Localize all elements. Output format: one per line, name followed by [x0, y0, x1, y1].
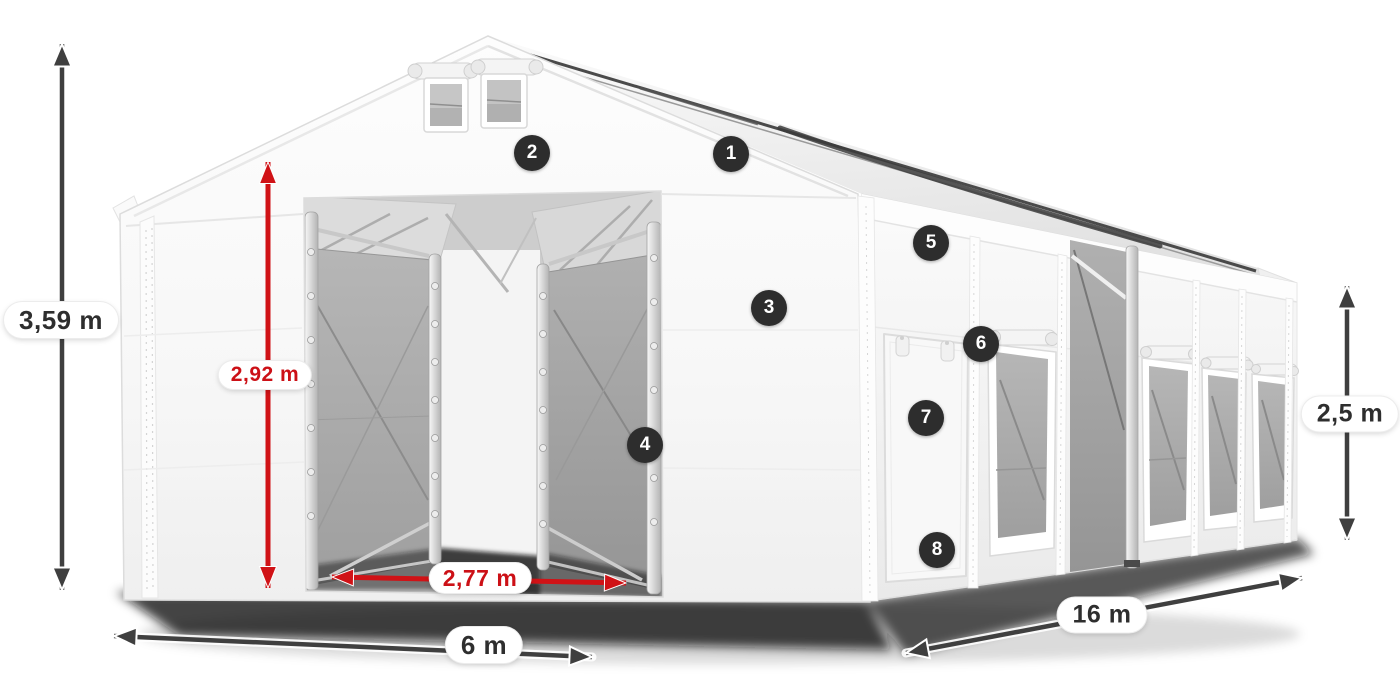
- feature-badge-5[interactable]: 5: [913, 225, 949, 261]
- open-side-bay: [1070, 240, 1140, 572]
- side-window-2: [1141, 346, 1200, 542]
- side-window-1: [988, 330, 1059, 556]
- tent-dimension-diagram: 3,59 m 2,92 m 2,77 m 6 m 16 m 2,5 m 1 2 …: [0, 0, 1400, 700]
- dimension-label-side-length: 16 m: [1058, 598, 1147, 633]
- inner-gate-mesh-right: [548, 254, 660, 590]
- feature-badge-7[interactable]: 7: [908, 400, 944, 436]
- dimension-label-side-height: 2,5 m: [1302, 397, 1398, 432]
- feature-badge-4[interactable]: 4: [627, 427, 663, 463]
- through-passage: [440, 250, 540, 585]
- feature-badge-1[interactable]: 1: [713, 136, 749, 172]
- dimension-label-entrance-width: 2,77 m: [430, 563, 531, 593]
- feature-badge-6[interactable]: 6: [963, 326, 999, 362]
- feature-badge-2[interactable]: 2: [514, 135, 550, 171]
- dimension-label-entrance-height: 2,92 m: [219, 361, 311, 389]
- feature-badge-3[interactable]: 3: [751, 290, 787, 326]
- dimension-label-front-width: 6 m: [446, 627, 522, 663]
- tent-interior: [298, 184, 670, 604]
- dimension-label-total-height: 3,59 m: [4, 302, 118, 338]
- feature-badge-8[interactable]: 8: [919, 532, 955, 568]
- tent-illustration: [0, 0, 1400, 700]
